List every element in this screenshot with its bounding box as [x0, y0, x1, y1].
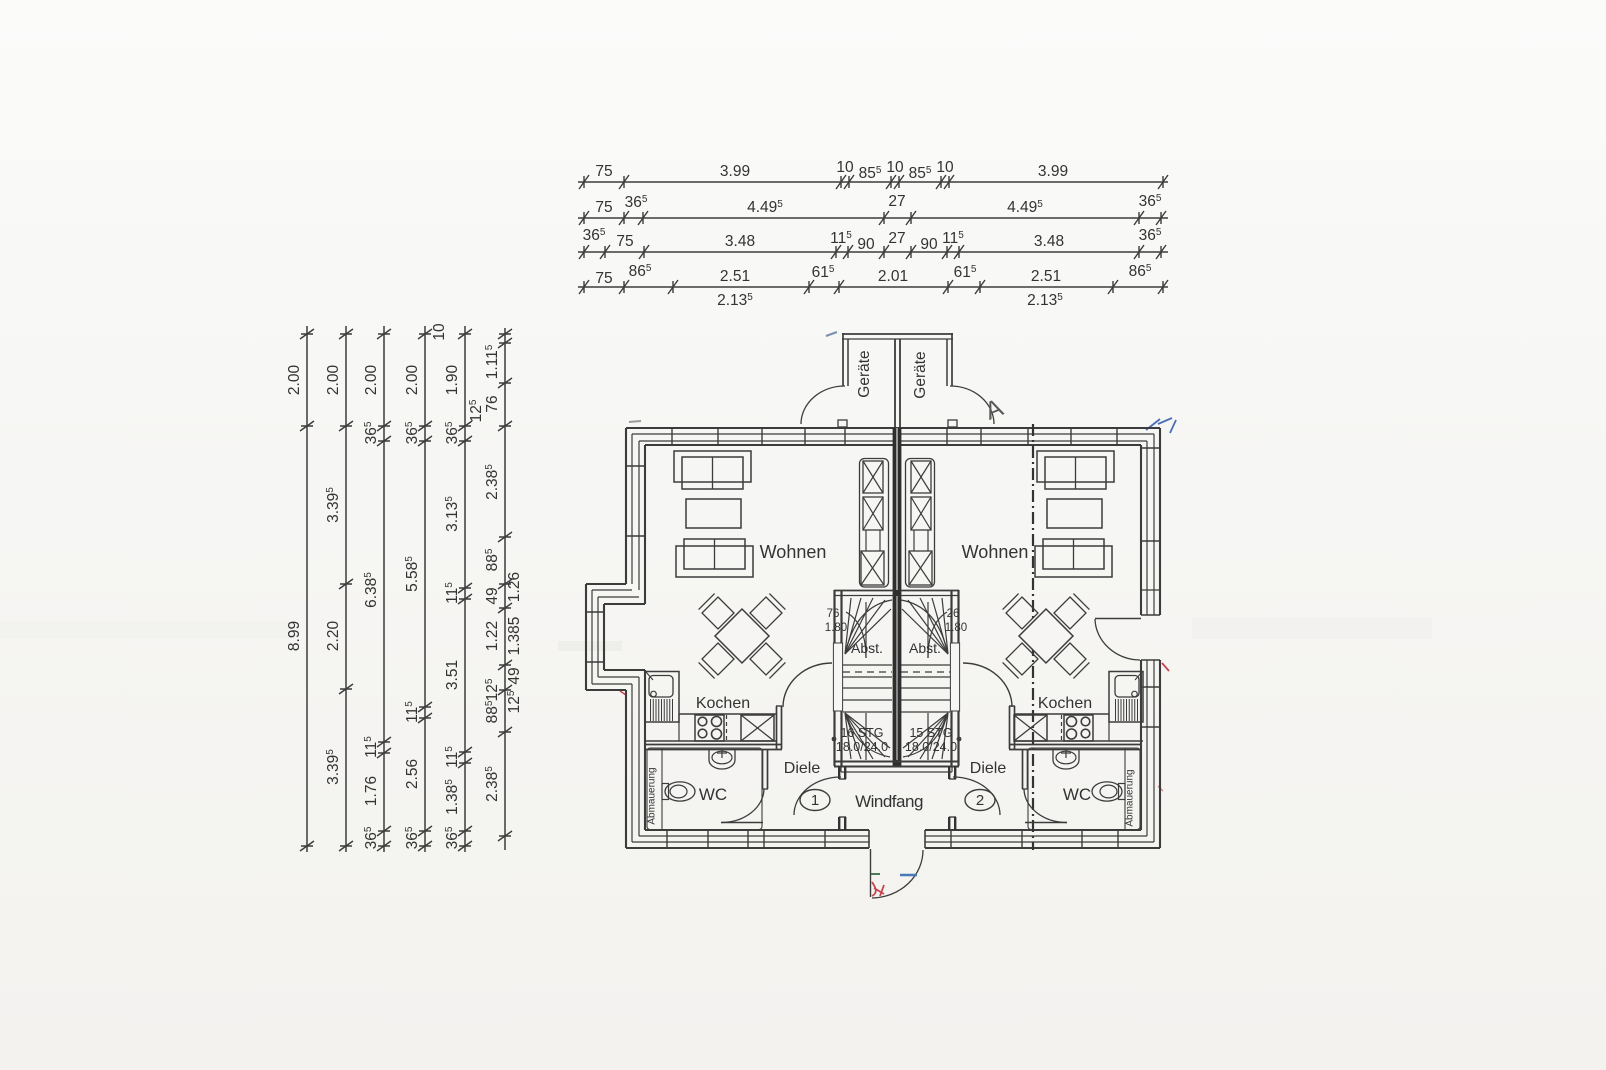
svg-text:Diele: Diele [784, 760, 821, 777]
svg-text:3.48: 3.48 [725, 233, 755, 250]
svg-text:Abmauerung: Abmauerung [647, 767, 658, 824]
svg-text:1.76: 1.76 [363, 776, 380, 806]
svg-text:8.99: 8.99 [286, 621, 303, 651]
svg-text:2.56: 2.56 [404, 759, 421, 789]
svg-text:10: 10 [886, 159, 904, 176]
svg-text:3.51: 3.51 [444, 660, 461, 690]
svg-text:Wohnen: Wohnen [962, 542, 1029, 562]
svg-text:75: 75 [616, 233, 633, 250]
svg-text:3.48: 3.48 [1034, 233, 1064, 250]
svg-text:3.99: 3.99 [1038, 163, 1068, 180]
svg-text:10: 10 [836, 159, 854, 176]
svg-text:2.51: 2.51 [1031, 268, 1061, 285]
svg-text:Abst.: Abst. [851, 640, 883, 656]
svg-text:75: 75 [595, 270, 612, 287]
svg-text:1.80: 1.80 [945, 622, 967, 634]
svg-text:Kochen: Kochen [696, 695, 750, 712]
svg-text:27: 27 [888, 193, 905, 210]
svg-text:26: 26 [947, 608, 960, 620]
svg-text:Abst.: Abst. [909, 640, 941, 656]
svg-text:18.0/24.0: 18.0/24.0 [905, 740, 957, 754]
svg-text:90: 90 [857, 236, 875, 253]
svg-text:1: 1 [811, 792, 819, 809]
svg-text:27: 27 [888, 230, 905, 247]
svg-text:10: 10 [936, 159, 954, 176]
svg-text:10: 10 [431, 323, 448, 341]
svg-text:75: 75 [595, 163, 612, 180]
svg-text:75: 75 [595, 199, 612, 216]
svg-text:49: 49 [484, 587, 501, 604]
svg-text:2.00: 2.00 [404, 365, 421, 396]
svg-text:WC: WC [1063, 785, 1091, 804]
svg-text:3.99: 3.99 [720, 163, 750, 180]
svg-text:Geräte: Geräte [912, 351, 929, 398]
svg-text:Diele: Diele [970, 760, 1007, 777]
svg-text:2.00: 2.00 [363, 365, 380, 396]
svg-text:2: 2 [976, 792, 984, 809]
svg-text:49: 49 [506, 667, 523, 684]
svg-text:90: 90 [920, 236, 938, 253]
svg-text:1.26: 1.26 [506, 572, 523, 602]
svg-text:16 STG: 16 STG [840, 726, 883, 740]
svg-text:2.20: 2.20 [325, 621, 342, 652]
svg-text:2.51: 2.51 [720, 268, 750, 285]
svg-text:76: 76 [484, 395, 501, 412]
svg-text:Windfang: Windfang [855, 792, 923, 811]
svg-text:2.00: 2.00 [286, 365, 303, 396]
svg-text:WC: WC [699, 785, 727, 804]
svg-text:Abmauerung: Abmauerung [1125, 769, 1136, 826]
svg-text:18.0/24.0: 18.0/24.0 [836, 740, 888, 754]
svg-text:2.00: 2.00 [325, 365, 342, 396]
svg-text:1.80: 1.80 [825, 622, 847, 634]
svg-text:Geräte: Geräte [856, 350, 873, 397]
svg-text:Kochen: Kochen [1038, 695, 1092, 712]
svg-text:15 STG: 15 STG [909, 726, 952, 740]
svg-text:2.01: 2.01 [878, 268, 908, 285]
svg-text:76: 76 [827, 608, 840, 620]
svg-text:1.90: 1.90 [444, 365, 461, 396]
svg-text:1.22: 1.22 [484, 621, 501, 651]
svg-text:1.385: 1.385 [506, 617, 523, 656]
svg-text:Wohnen: Wohnen [760, 542, 827, 562]
